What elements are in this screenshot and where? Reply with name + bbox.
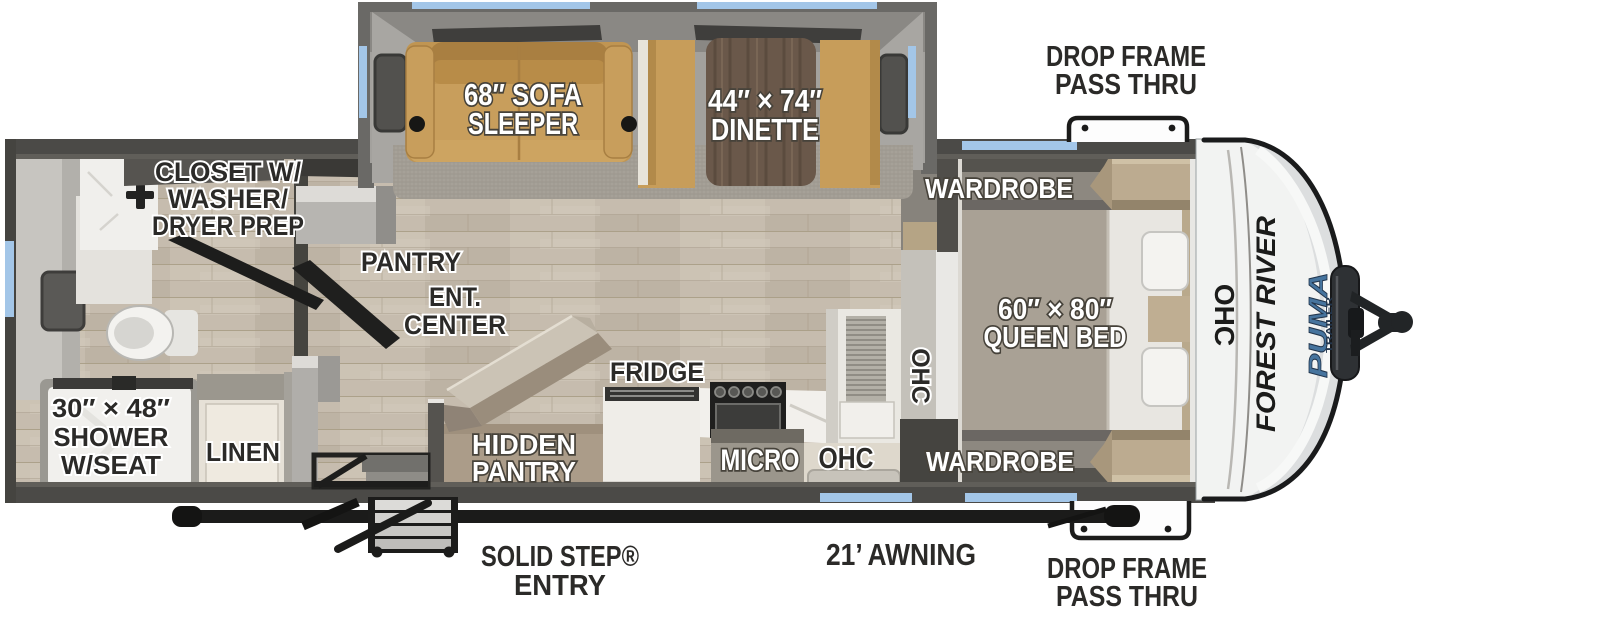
svg-text:PANTRY: PANTRY [361,247,461,277]
svg-text:PASS THRU: PASS THRU [1056,581,1198,613]
svg-text:CENTER: CENTER [404,310,506,340]
svg-text:SHOWER: SHOWER [54,422,169,452]
svg-text:QUEEN BED: QUEEN BED [984,322,1127,354]
svg-text:FOREST RIVER: FOREST RIVER [1251,215,1281,432]
svg-text:LINEN: LINEN [206,437,280,467]
svg-text:OHC: OHC [1209,284,1240,346]
svg-text:WARDROBE: WARDROBE [926,446,1074,477]
svg-text:SLEEPER: SLEEPER [468,106,578,141]
svg-text:PASS THRU: PASS THRU [1055,69,1197,101]
svg-text:CLOSET W/: CLOSET W/ [155,157,301,187]
svg-text:WARDROBE: WARDROBE [925,173,1073,204]
svg-text:MICRO: MICRO [721,444,800,477]
svg-text:WASHER/: WASHER/ [168,184,288,214]
svg-text:OHC: OHC [819,443,874,475]
svg-text:DRYER PREP: DRYER PREP [152,211,304,241]
svg-text:21’ AWNING: 21’ AWNING [826,537,976,572]
svg-text:TRAILER: TRAILER [1325,297,1334,353]
svg-text:ENTRY: ENTRY [514,570,606,602]
svg-text:ENT.: ENT. [429,282,481,312]
svg-text:DINETTE: DINETTE [711,112,819,147]
svg-text:PANTRY: PANTRY [472,456,576,487]
svg-text:W/SEAT: W/SEAT [61,450,161,480]
svg-text:SOLID STEP®: SOLID STEP® [481,541,639,573]
svg-text:30″ × 48″: 30″ × 48″ [52,393,170,423]
svg-text:OHC: OHC [906,348,934,404]
svg-text:FRIDGE: FRIDGE [610,357,704,387]
